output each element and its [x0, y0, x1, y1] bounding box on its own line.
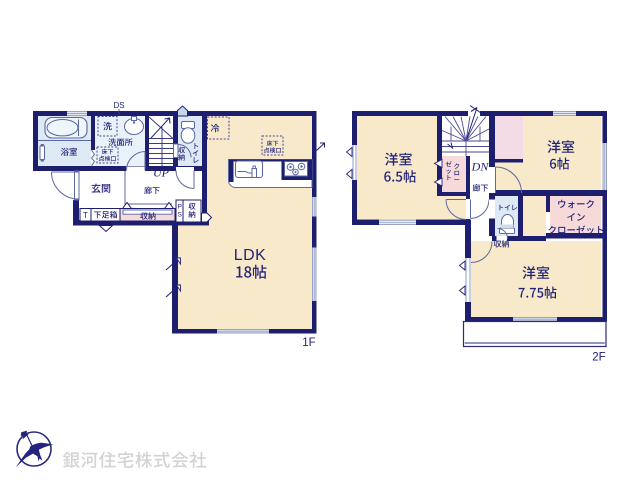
svg-text:DS: DS: [113, 101, 124, 110]
svg-text:S: S: [178, 212, 183, 219]
svg-text:2F: 2F: [592, 352, 605, 364]
svg-text:DN: DN: [471, 160, 490, 174]
svg-text:UP: UP: [153, 166, 170, 180]
svg-text:T: T: [83, 211, 88, 220]
svg-text:P: P: [178, 204, 182, 211]
svg-text:LDK: LDK: [234, 247, 267, 264]
svg-text:1F: 1F: [302, 337, 315, 349]
